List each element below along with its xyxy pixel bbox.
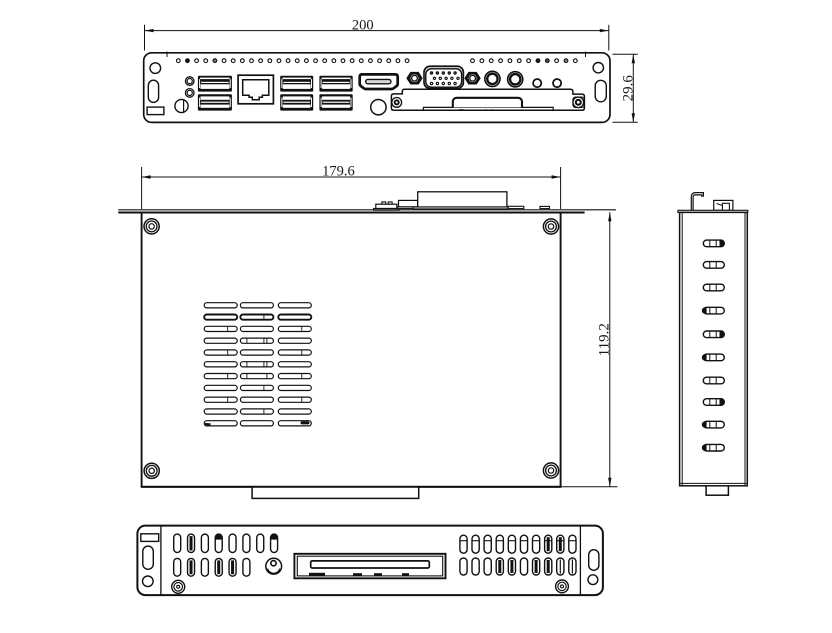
svg-text:179.6: 179.6 — [322, 163, 355, 179]
svg-text:119.2: 119.2 — [597, 323, 613, 356]
svg-text:29.6: 29.6 — [620, 75, 636, 102]
svg-text:200: 200 — [352, 18, 374, 34]
